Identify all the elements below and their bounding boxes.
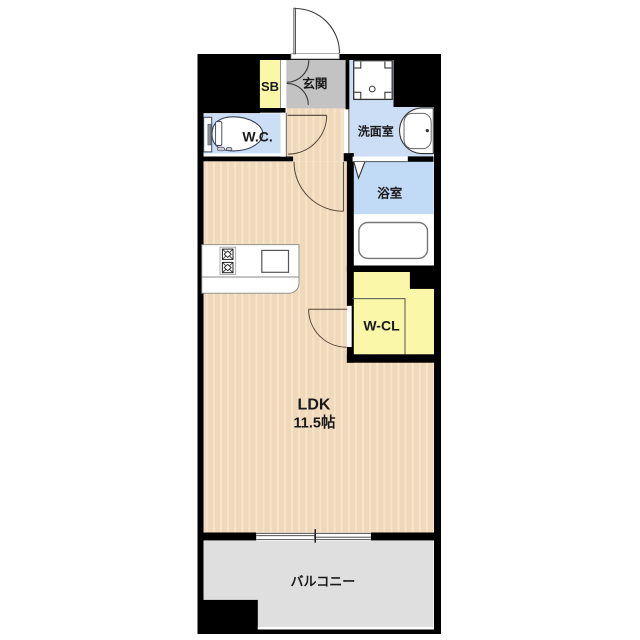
svg-text:W.C.: W.C. [242, 129, 272, 145]
svg-text:W-CL: W-CL [363, 318, 400, 334]
svg-text:LDK: LDK [298, 397, 331, 414]
svg-text:SB: SB [261, 79, 279, 94]
svg-text:バルコニー: バルコニー [291, 574, 356, 589]
svg-text:玄関: 玄関 [302, 76, 327, 91]
svg-text:洗面室: 洗面室 [358, 124, 394, 139]
svg-text:11.5帖: 11.5帖 [294, 414, 336, 432]
svg-text:浴室: 浴室 [377, 185, 403, 200]
